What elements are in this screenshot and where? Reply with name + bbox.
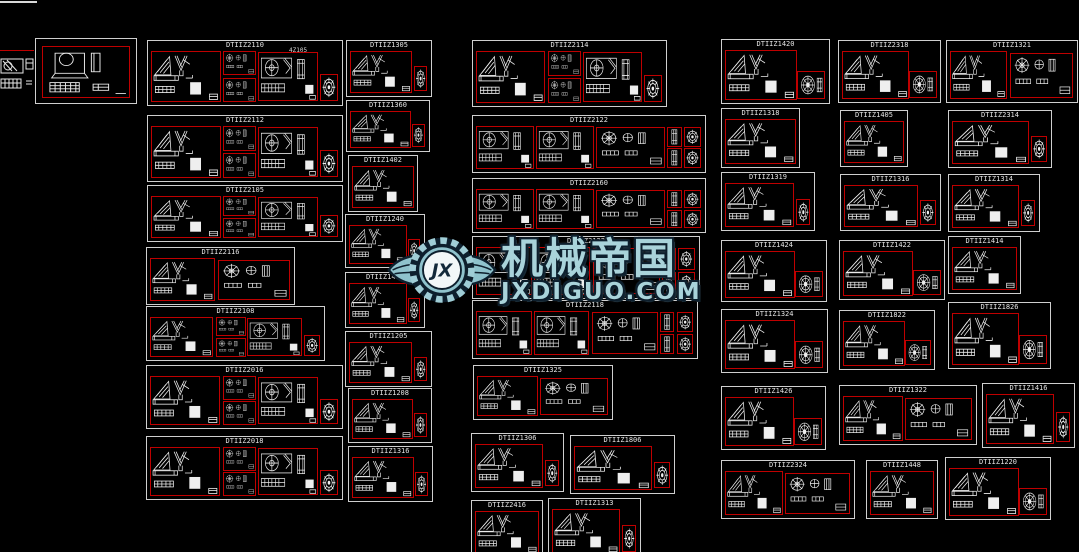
drawing-panel xyxy=(870,471,934,515)
drawing-panel xyxy=(476,51,545,103)
drawing-sheet[interactable]: DTIIZ1316 xyxy=(348,446,433,502)
drawing-panel xyxy=(218,260,290,300)
drawing-sheet[interactable]: DTIIZ1426 xyxy=(721,386,826,450)
drawing-panel xyxy=(545,460,559,486)
drawing-panel xyxy=(258,448,318,495)
drawing-panel xyxy=(654,462,670,488)
drawing-panel xyxy=(258,127,318,177)
drawing-panel xyxy=(548,51,581,76)
drawing-panel xyxy=(844,121,904,163)
drawing-panel xyxy=(725,397,794,446)
drawing-panel xyxy=(540,378,607,415)
drawing-panel xyxy=(949,468,1019,516)
drawing-panel xyxy=(909,71,936,98)
drawing-panel xyxy=(536,189,594,229)
drawing-panel xyxy=(151,51,221,102)
drawing-panel xyxy=(258,197,318,237)
drawing-panel xyxy=(952,247,1017,290)
drawing-panel xyxy=(842,51,909,99)
brand-domain: JXDIGUO.COM xyxy=(501,280,702,304)
drawing-panel xyxy=(476,311,532,355)
drawing-panel xyxy=(913,270,941,295)
drawing-panel xyxy=(349,342,412,383)
drawing-panel xyxy=(223,51,256,75)
sheet-title: DTIIZ2314 xyxy=(949,111,1051,120)
drawing-sheet[interactable]: DTIIZ2116 xyxy=(146,247,295,305)
sheet-title: DTIIZ2318 xyxy=(839,41,940,50)
drawing-panel xyxy=(150,317,213,357)
drawing-sheet[interactable]: DTIIZ1826 xyxy=(948,302,1051,369)
drawing-panel xyxy=(795,341,823,368)
sheet-title: DTIIZ1424 xyxy=(722,241,826,250)
drawing-panel xyxy=(952,185,1019,228)
drawing-panel xyxy=(952,313,1019,365)
drawing-panel xyxy=(477,376,538,416)
drawing-panel xyxy=(795,271,823,297)
sheet-title: DTIIZ1220 xyxy=(946,458,1050,467)
drawing-panel xyxy=(476,126,534,169)
drawing-sheet[interactable]: DTIIZ21104Z105 xyxy=(147,40,343,106)
drawing-sheet[interactable]: DTIIZ1324 xyxy=(721,309,828,373)
drawing-panel xyxy=(414,413,427,437)
drawing-panel xyxy=(258,377,318,424)
sheet-title: DTIIZ1305 xyxy=(347,41,431,50)
drawing-panel xyxy=(534,311,590,355)
sheet-title: DTIIZ2018 xyxy=(147,437,342,446)
sheet-title: DTIIZ1448 xyxy=(867,461,937,470)
drawing-sheet[interactable]: DTIIZ1321 xyxy=(946,40,1078,103)
sheet-title: DTIIZ1313 xyxy=(549,499,640,508)
drawing-sheet[interactable]: DTIIZ1205 xyxy=(345,331,432,387)
drawing-panel xyxy=(247,318,302,356)
drawing-panel xyxy=(660,334,674,354)
drawing-panel xyxy=(684,148,701,168)
drawing-panel xyxy=(725,50,797,100)
sheet-title: DTIIZ1426 xyxy=(722,387,825,396)
drawing-panel xyxy=(475,444,543,488)
drawing-sheet[interactable]: DTIIZ1806 xyxy=(570,435,675,494)
drawing-panel xyxy=(1010,53,1073,97)
drawing-sheet[interactable]: DTIIZ1448 xyxy=(866,460,938,519)
drawing-panel xyxy=(1031,136,1047,162)
drawing-sheet[interactable]: DTIIZ2112 xyxy=(147,115,343,182)
sheet-title: DTIIZ1826 xyxy=(949,303,1050,312)
clipped-sheet-top-fragment xyxy=(0,1,37,3)
drawing-panel xyxy=(223,472,256,496)
sheet-title: DTIIZ1306 xyxy=(472,434,563,443)
drawing-panel xyxy=(320,399,338,424)
drawing-sheet[interactable]: DTIIZ1313 xyxy=(548,498,641,552)
drawing-panel xyxy=(150,258,215,301)
sheet-title: DTIIZ1325 xyxy=(474,366,612,375)
drawing-sheet[interactable]: DTIIZ1822 xyxy=(839,310,935,370)
drawing-panel xyxy=(1019,488,1047,515)
drawing-sheet[interactable]: DTIIZ2416 xyxy=(471,500,543,552)
drawing-sheet[interactable]: DTIIZ2108 xyxy=(146,306,325,361)
drawing-panel xyxy=(320,470,338,495)
logo-initials: JX xyxy=(429,261,454,282)
drawing-sheet[interactable]: DTIIZ1422 xyxy=(839,240,945,300)
drawing-sheet[interactable]: DTIIZ1360 xyxy=(346,100,430,152)
drawing-panel xyxy=(150,376,220,425)
drawing-panel xyxy=(677,334,693,354)
drawing-sheet[interactable]: DTIIZ2324 xyxy=(721,460,855,519)
drawing-panel xyxy=(223,78,256,102)
drawing-panel xyxy=(552,509,620,552)
sheet-title: DTIIZ1422 xyxy=(840,241,944,250)
drawing-sheet[interactable]: DTIIZ2160 xyxy=(472,178,706,233)
drawing-sheet[interactable]: DTIIZ1208 xyxy=(348,388,432,443)
drawing-sheet[interactable]: DTIIZ1416 xyxy=(982,383,1075,448)
drawing-sheet[interactable]: DTIIZ1220 xyxy=(945,457,1051,520)
sheet-title: DTIIZ1416 xyxy=(983,384,1074,393)
sheet-title: DTIIZ2122 xyxy=(473,116,705,125)
sheet-title: DTIIZ2160 xyxy=(473,179,705,188)
drawing-panel xyxy=(843,396,903,441)
drawing-sheet[interactable]: DTIIZ1325 xyxy=(473,365,613,420)
sheet-title: DTIIZ2416 xyxy=(472,501,542,510)
drawing-panel xyxy=(684,127,701,147)
drawing-sheet[interactable]: DTIIZ1405 xyxy=(840,110,908,167)
sheet-title: DTIIZ1240 xyxy=(346,215,424,224)
sheet-title: DTIIZ1316 xyxy=(349,447,432,456)
drawing-panel xyxy=(352,457,414,498)
drawing-panel xyxy=(785,473,849,513)
drawing-panel xyxy=(644,75,662,102)
drawing-panel xyxy=(843,321,905,366)
drawing-panel xyxy=(725,251,795,298)
sheet-title: DTIIZ2324 xyxy=(722,461,854,470)
drawing-sheet[interactable]: DTIIZ2114 xyxy=(472,40,667,107)
drawing-panel xyxy=(320,74,338,101)
drawing-panel xyxy=(843,251,913,296)
sheet-title: DTIIZ1822 xyxy=(840,311,934,320)
drawing-panel xyxy=(622,525,636,552)
drawing-panel xyxy=(1019,335,1046,364)
drawing-panel xyxy=(151,126,221,178)
sheet-title: DTIIZ2108 xyxy=(147,307,324,316)
drawing-sheet[interactable]: DTIIZ1414 xyxy=(948,236,1021,294)
sheet-title: DTIIZ2110 xyxy=(148,41,342,50)
drawing-sheet[interactable]: DTIIZ1402 xyxy=(348,155,418,212)
drawing-panel xyxy=(1021,200,1035,226)
sheet-title: DTIIZ2105 xyxy=(148,186,342,195)
drawing-panel xyxy=(304,335,320,356)
sheet-title: DTIIZ2112 xyxy=(148,116,342,125)
drawing-sheet[interactable]: DTIIZ2105 xyxy=(147,185,343,242)
drawing-panel xyxy=(223,126,256,151)
drawing-panel xyxy=(677,312,693,332)
drawing-panel xyxy=(574,446,652,490)
drawing-panel xyxy=(725,183,794,227)
drawing-panel xyxy=(667,190,682,208)
drawing-panel xyxy=(414,66,427,91)
drawing-panel xyxy=(1056,412,1070,442)
drawing-sheet[interactable]: DTIIZ2318 xyxy=(838,40,941,103)
drawing-panel xyxy=(476,189,534,229)
drawing-panel xyxy=(667,148,682,168)
sheet-title: DTIIZ1321 xyxy=(947,41,1077,50)
drawing-panel xyxy=(950,51,1007,99)
drawing-panel xyxy=(684,190,701,208)
drawing-panel xyxy=(223,196,256,216)
drawing-panel xyxy=(352,399,413,439)
drawing-panel xyxy=(350,51,412,93)
brand-name-cn: 机械帝国 xyxy=(501,236,702,282)
drawing-panel xyxy=(548,78,581,103)
cad-canvas[interactable]: DTIIZ21104Z105 DTIIZ2112 DTIIZ2105 DTIIZ… xyxy=(0,0,1079,552)
drawing-panel xyxy=(796,199,811,225)
sheet-title: DTIIZ1314 xyxy=(949,175,1039,184)
sheet-title: DTIIZ1208 xyxy=(349,389,431,398)
winged-gear-logo-icon: JX xyxy=(385,226,499,314)
drawing-panel xyxy=(952,121,1029,164)
sheet-title: DTIIZ1360 xyxy=(347,101,429,110)
drawing-panel xyxy=(725,471,783,515)
drawing-panel xyxy=(223,218,256,238)
drawing-sheet[interactable]: DTIIZ1322 xyxy=(839,385,977,445)
drawing-sheet[interactable]: DTIIZ1306 xyxy=(471,433,564,492)
drawing-panel xyxy=(151,196,221,238)
drawing-panel xyxy=(320,215,338,237)
drawing-sheet[interactable]: DTIIZ1319 xyxy=(721,172,815,231)
drawing-panel xyxy=(986,394,1054,444)
drawing-panel xyxy=(216,338,246,357)
drawing-panel xyxy=(415,472,428,497)
sheet-title: DTIIZ1205 xyxy=(346,332,431,341)
sheet-title: DTIIZ1316 xyxy=(841,175,940,184)
drawing-panel xyxy=(352,166,414,208)
drawing-panel xyxy=(592,312,658,353)
clipped-sheet-fragment xyxy=(0,50,34,107)
drawing-sheet[interactable]: DTIIZ1318 xyxy=(721,108,800,168)
drawing-sheet[interactable]: DTIIZ2018 xyxy=(146,436,343,500)
drawing-sheet[interactable]: DTIIZ1316 xyxy=(840,174,941,231)
drawing-panel xyxy=(794,418,822,445)
sheet-title: DTIIZ1402 xyxy=(349,156,417,165)
drawing-panel xyxy=(223,376,256,400)
drawing-panel xyxy=(350,111,411,148)
drawing-sheet[interactable] xyxy=(35,38,137,104)
drawing-panel xyxy=(905,398,971,439)
drawing-sheet[interactable]: DTIIZ2016 xyxy=(146,365,343,429)
sheet-title: DTIIZ1319 xyxy=(722,173,814,182)
sheet-title: DTIIZ2114 xyxy=(473,41,666,50)
drawing-panel xyxy=(42,46,130,98)
drawing-panel xyxy=(725,119,796,164)
drawing-panel xyxy=(412,124,425,146)
sheet-title: DTIIZ1414 xyxy=(949,237,1020,246)
drawing-panel xyxy=(320,150,338,177)
sheet-title: DTIIZ2116 xyxy=(147,248,294,257)
drawing-panel xyxy=(536,126,594,169)
drawing-panel xyxy=(150,447,220,496)
drawing-panel xyxy=(216,317,246,336)
sheet-title: DTIIZ1405 xyxy=(841,111,907,120)
drawing-panel xyxy=(596,190,665,228)
drawing-panel xyxy=(797,71,826,99)
drawing-panel xyxy=(920,200,936,225)
drawing-sheet[interactable]: DTIIZ1314 xyxy=(948,174,1040,232)
sheet-title: DTIIZ1322 xyxy=(840,386,976,395)
drawing-panel xyxy=(583,52,643,102)
drawing-panel xyxy=(223,447,256,471)
sheet-title: DTIIZ1324 xyxy=(722,310,827,319)
sheet-title: DTIIZ1806 xyxy=(571,436,674,445)
drawing-panel xyxy=(844,185,918,227)
drawing-sheet[interactable]: DTIIZ1420 xyxy=(721,39,830,104)
drawing-panel xyxy=(905,340,930,365)
watermark: JX 机械帝国 JXDIGUO.COM xyxy=(385,226,691,314)
drawing-panel xyxy=(258,52,318,101)
drawing-sheet[interactable]: DTIIZ1424 xyxy=(721,240,827,302)
drawing-panel xyxy=(223,401,256,425)
sheet-title: DTIIZ1420 xyxy=(722,40,829,49)
drawing-panel xyxy=(414,357,427,382)
drawing-panel xyxy=(725,320,795,369)
drawing-panel xyxy=(667,127,682,147)
drawing-sheet[interactable]: DTIIZ2314 xyxy=(948,110,1052,168)
drawing-panel xyxy=(596,127,665,167)
drawing-panel xyxy=(660,312,674,332)
drawing-panel xyxy=(475,511,539,552)
drawing-sheet[interactable]: DTIIZ1305 xyxy=(346,40,432,97)
sheet-title: DTIIZ1318 xyxy=(722,109,799,118)
drawing-sheet[interactable]: DTIIZ2122 xyxy=(472,115,706,173)
sheet-title: DTIIZ2016 xyxy=(147,366,342,375)
drawing-panel xyxy=(223,153,256,178)
